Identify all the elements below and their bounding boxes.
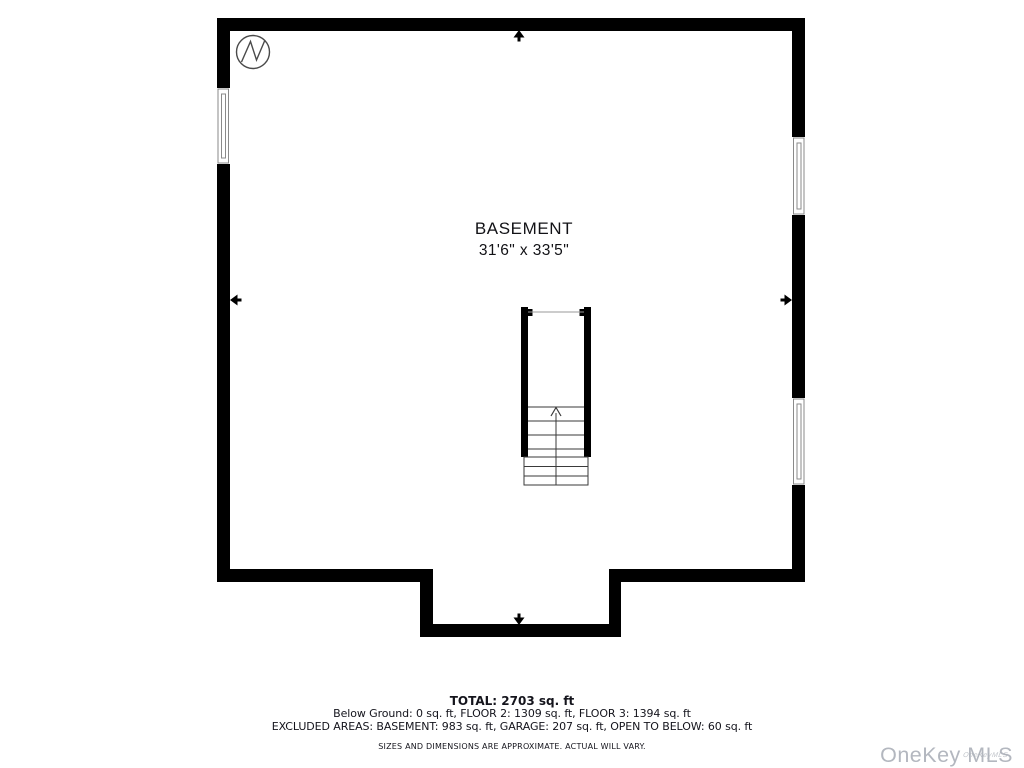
window-right-upper-icon (791, 137, 807, 215)
window-left-icon (215, 88, 231, 164)
wall-arrow-right-icon (781, 295, 793, 306)
room-dimensions: 31'6" x 33'5" (404, 242, 644, 260)
wall-arrow-top-icon (514, 30, 525, 42)
onekey-mls-watermark-small: OneKeyMLS (962, 752, 1008, 759)
wall-arrow-bottom-icon (514, 614, 525, 626)
disclaimer-text: SIZES AND DIMENSIONS ARE APPROXIMATE. AC… (0, 742, 1024, 751)
floor-breakdown-text: Below Ground: 0 sq. ft, FLOOR 2: 1309 sq… (0, 708, 1024, 720)
staircase (521, 307, 591, 485)
compass-north-icon (237, 36, 270, 69)
floorplan-drawing (0, 0, 1024, 768)
room-name: BASEMENT (404, 219, 644, 239)
excluded-areas-text: EXCLUDED AREAS: BASEMENT: 983 sq. ft, GA… (0, 721, 1024, 733)
room-label-block: BASEMENT 31'6" x 33'5" (404, 219, 644, 260)
floorplan-page: BASEMENT 31'6" x 33'5" TOTAL: 2703 sq. f… (0, 0, 1024, 768)
total-area-text: TOTAL: 2703 sq. ft (0, 695, 1024, 707)
window-right-lower-icon (791, 398, 807, 485)
wall-arrow-left-icon (230, 295, 242, 306)
area-summary: TOTAL: 2703 sq. ft Below Ground: 0 sq. f… (0, 695, 1024, 751)
exterior-walls (217, 18, 805, 637)
